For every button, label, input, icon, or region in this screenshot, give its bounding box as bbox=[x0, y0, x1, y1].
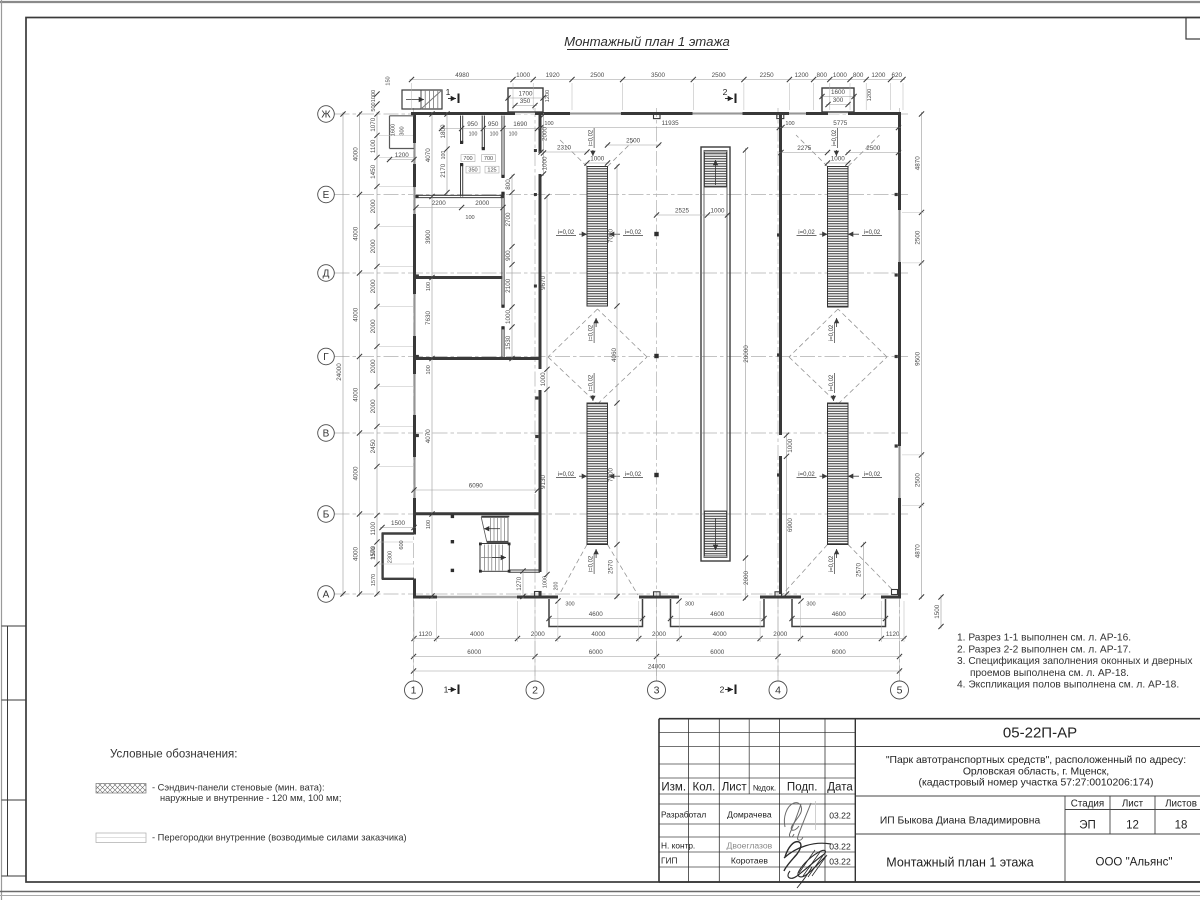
svg-text:6000: 6000 bbox=[832, 649, 847, 656]
svg-text:4070: 4070 bbox=[425, 148, 432, 163]
svg-text:12: 12 bbox=[1126, 820, 1139, 832]
svg-text:4600: 4600 bbox=[832, 611, 847, 618]
svg-text:i=0,02: i=0,02 bbox=[829, 374, 835, 391]
svg-text:2: 2 bbox=[532, 685, 538, 697]
svg-text:2000: 2000 bbox=[475, 200, 490, 207]
svg-text:1. Разрез 1-1 выполнен см. л.: 1. Разрез 1-1 выполнен см. л. АР-16. bbox=[957, 633, 1131, 644]
svg-text:1120: 1120 bbox=[419, 631, 433, 638]
svg-text:4980: 4980 bbox=[455, 72, 470, 79]
svg-text:ИП Быкова Диана Владимировна: ИП Быкова Диана Владимировна bbox=[880, 816, 1041, 827]
svg-text:4000: 4000 bbox=[353, 387, 360, 402]
svg-text:4060: 4060 bbox=[611, 348, 618, 363]
svg-text:7630: 7630 bbox=[425, 311, 432, 326]
svg-text:2310: 2310 bbox=[557, 145, 572, 152]
svg-text:ЭП: ЭП bbox=[1079, 820, 1096, 832]
svg-text:1270: 1270 bbox=[516, 576, 523, 591]
svg-text:4000: 4000 bbox=[353, 466, 360, 481]
svg-text:2450: 2450 bbox=[370, 439, 377, 454]
svg-text:100: 100 bbox=[426, 282, 432, 291]
svg-text:ГИП: ГИП bbox=[661, 856, 677, 866]
svg-text:300: 300 bbox=[400, 126, 406, 135]
svg-text:2500: 2500 bbox=[712, 72, 727, 79]
svg-text:1: 1 bbox=[444, 685, 449, 695]
svg-text:2000: 2000 bbox=[370, 319, 377, 334]
svg-text:i=0,02: i=0,02 bbox=[589, 374, 595, 391]
svg-text:300: 300 bbox=[833, 97, 844, 104]
svg-text:600: 600 bbox=[399, 540, 405, 549]
svg-text:100: 100 bbox=[509, 132, 518, 138]
svg-text:1100: 1100 bbox=[371, 547, 377, 559]
svg-text:4000: 4000 bbox=[834, 631, 849, 638]
svg-text:1800: 1800 bbox=[440, 124, 447, 139]
svg-text:1: 1 bbox=[446, 87, 451, 97]
svg-text:1200: 1200 bbox=[794, 72, 809, 79]
svg-text:i=0,02: i=0,02 bbox=[625, 230, 642, 236]
svg-text:100: 100 bbox=[426, 365, 432, 374]
svg-text:2300: 2300 bbox=[388, 551, 394, 563]
svg-text:1000: 1000 bbox=[590, 156, 605, 163]
svg-text:4870: 4870 bbox=[915, 156, 922, 171]
svg-text:3. Спецификация заполнения око: 3. Спецификация заполнения оконных и две… bbox=[957, 655, 1192, 667]
svg-text:Двоеглазов: Двоеглазов bbox=[727, 841, 773, 851]
svg-text:100: 100 bbox=[785, 121, 794, 127]
svg-text:300: 300 bbox=[685, 602, 694, 608]
svg-text:800: 800 bbox=[816, 72, 827, 79]
svg-text:2000: 2000 bbox=[652, 631, 667, 638]
svg-text:1000: 1000 bbox=[787, 438, 794, 453]
svg-text:1200: 1200 bbox=[395, 152, 410, 159]
svg-text:Монтажный план 1 этажа: Монтажный план 1 этажа bbox=[886, 856, 1033, 870]
svg-text:Лист: Лист bbox=[1122, 799, 1144, 810]
svg-text:2100: 2100 bbox=[505, 278, 512, 293]
svg-text:- Перегородки внутренние (возв: - Перегородки внутренние (возводимые сил… bbox=[152, 833, 407, 843]
svg-text:1000: 1000 bbox=[833, 72, 848, 79]
svg-text:2000: 2000 bbox=[531, 631, 546, 638]
svg-text:18: 18 bbox=[1175, 820, 1188, 832]
svg-text:800: 800 bbox=[853, 72, 864, 79]
svg-text:2200: 2200 bbox=[432, 200, 447, 207]
svg-text:1690: 1690 bbox=[513, 121, 528, 128]
svg-text:4600: 4600 bbox=[589, 611, 604, 618]
svg-text:1000: 1000 bbox=[710, 208, 725, 215]
svg-text:1600: 1600 bbox=[831, 89, 846, 96]
svg-text:2000: 2000 bbox=[773, 631, 788, 638]
svg-text:2500: 2500 bbox=[626, 138, 641, 145]
svg-text:4000: 4000 bbox=[470, 631, 485, 638]
svg-text:1000: 1000 bbox=[371, 90, 377, 102]
svg-text:2250: 2250 bbox=[760, 72, 775, 79]
svg-text:i=0,02: i=0,02 bbox=[829, 324, 835, 341]
svg-text:1500: 1500 bbox=[391, 520, 406, 527]
svg-text:4000: 4000 bbox=[353, 226, 360, 241]
svg-text:4600: 4600 bbox=[710, 611, 725, 618]
svg-text:350: 350 bbox=[520, 98, 531, 105]
svg-text:1000: 1000 bbox=[542, 156, 549, 171]
svg-text:950: 950 bbox=[488, 121, 499, 128]
svg-text:100: 100 bbox=[544, 121, 553, 127]
svg-text:1000: 1000 bbox=[505, 310, 512, 325]
svg-text:1600: 1600 bbox=[391, 124, 397, 136]
svg-text:11935: 11935 bbox=[662, 120, 680, 127]
svg-text:проемов выполнена см. л. АР-18: проемов выполнена см. л. АР-18. bbox=[970, 668, 1129, 679]
svg-text:i=0,02: i=0,02 bbox=[832, 129, 838, 146]
svg-text:100: 100 bbox=[469, 132, 478, 138]
svg-text:1500: 1500 bbox=[934, 604, 941, 619]
svg-text:2170: 2170 bbox=[440, 163, 447, 178]
svg-text:Изм.: Изм. bbox=[661, 782, 686, 794]
svg-text:150: 150 bbox=[386, 76, 392, 85]
svg-text:i=0,02: i=0,02 bbox=[558, 230, 575, 236]
svg-text:Кол.: Кол. bbox=[693, 782, 716, 794]
svg-text:05-22П-АР: 05-22П-АР bbox=[1003, 725, 1077, 742]
svg-text:Подп.: Подп. bbox=[787, 782, 818, 794]
svg-text:i=0,02: i=0,02 bbox=[558, 472, 575, 478]
svg-text:6090: 6090 bbox=[469, 483, 484, 490]
svg-text:7000: 7000 bbox=[608, 229, 615, 244]
svg-text:Монтажный план 1 этажа: Монтажный план 1 этажа bbox=[564, 34, 730, 49]
svg-text:Лист: Лист bbox=[722, 782, 748, 794]
svg-text:03.22: 03.22 bbox=[829, 842, 851, 852]
svg-text:Стадия: Стадия bbox=[1071, 799, 1104, 810]
svg-text:2570: 2570 bbox=[608, 560, 615, 575]
svg-text:Домрачева: Домрачева bbox=[727, 810, 772, 820]
svg-text:ООО "Альянс": ООО "Альянс" bbox=[1096, 857, 1173, 869]
svg-text:1450: 1450 bbox=[370, 164, 377, 179]
svg-text:24000: 24000 bbox=[648, 664, 666, 671]
svg-text:350: 350 bbox=[468, 168, 477, 174]
svg-text:03.22: 03.22 bbox=[829, 811, 851, 821]
svg-text:3: 3 bbox=[654, 685, 660, 697]
svg-text:3900: 3900 bbox=[425, 230, 432, 245]
svg-text:2275: 2275 bbox=[797, 145, 812, 152]
svg-text:Дата: Дата bbox=[827, 782, 853, 794]
svg-text:4: 4 bbox=[775, 685, 781, 697]
svg-text:4000: 4000 bbox=[353, 547, 360, 562]
svg-text:1700: 1700 bbox=[518, 91, 533, 98]
svg-text:(кадастровый номер участка 57:: (кадастровый номер участка 57:27:0010206… bbox=[919, 777, 1154, 788]
svg-text:9130: 9130 bbox=[540, 474, 547, 489]
svg-text:500: 500 bbox=[371, 102, 377, 111]
svg-text:3500: 3500 bbox=[651, 72, 666, 79]
svg-text:1920: 1920 bbox=[546, 72, 561, 79]
svg-text:Разработал: Разработал bbox=[661, 810, 706, 820]
svg-text:800: 800 bbox=[505, 179, 512, 190]
svg-text:i=0,02: i=0,02 bbox=[589, 555, 595, 572]
svg-text:Ж: Ж bbox=[321, 110, 331, 121]
svg-text:1200: 1200 bbox=[871, 72, 886, 79]
svg-text:- Сэндвич-панели стеновые (мин: - Сэндвич-панели стеновые (мин. вата): bbox=[152, 783, 325, 793]
svg-text:i=0,02: i=0,02 bbox=[864, 472, 881, 478]
svg-text:2. Разрез 2-2 выполнен см. л.: 2. Разрез 2-2 выполнен см. л. АР-17. bbox=[957, 644, 1131, 655]
svg-text:2: 2 bbox=[720, 685, 725, 695]
svg-text:4000: 4000 bbox=[353, 147, 360, 162]
svg-text:4070: 4070 bbox=[425, 429, 432, 444]
svg-text:Д: Д bbox=[323, 269, 330, 280]
svg-text:700: 700 bbox=[484, 156, 493, 162]
svg-text:9670: 9670 bbox=[540, 275, 547, 290]
svg-text:Условные обозначения:: Условные обозначения: bbox=[110, 749, 237, 761]
svg-text:2000: 2000 bbox=[542, 127, 549, 142]
svg-text:В: В bbox=[323, 429, 330, 440]
svg-text:100: 100 bbox=[441, 151, 447, 160]
svg-text:наружные и внутренние - 120 мм: наружные и внутренние - 120 мм, 100 мм; bbox=[160, 793, 341, 803]
svg-text:4000: 4000 bbox=[353, 307, 360, 322]
svg-text:900: 900 bbox=[505, 250, 512, 261]
svg-text:6000: 6000 bbox=[710, 649, 725, 656]
svg-text:Н. контр.: Н. контр. bbox=[661, 841, 695, 851]
svg-text:2000: 2000 bbox=[743, 571, 750, 586]
svg-text:i=0,02: i=0,02 bbox=[798, 472, 815, 478]
svg-text:950: 950 bbox=[467, 121, 478, 128]
svg-text:4. Экспликация полов выполнена: 4. Экспликация полов выполнена см. л. АР… bbox=[957, 680, 1179, 691]
svg-text:700: 700 bbox=[463, 156, 472, 162]
svg-text:1: 1 bbox=[411, 685, 417, 697]
svg-text:03.22: 03.22 bbox=[829, 857, 851, 867]
svg-text:2500: 2500 bbox=[915, 230, 922, 245]
svg-text:2000: 2000 bbox=[370, 399, 377, 414]
svg-text:1570: 1570 bbox=[371, 574, 377, 586]
svg-text:Е: Е bbox=[323, 190, 330, 201]
svg-text:6000: 6000 bbox=[589, 649, 604, 656]
svg-text:2500: 2500 bbox=[915, 473, 922, 488]
svg-text:2000: 2000 bbox=[370, 239, 377, 254]
svg-text:2700: 2700 bbox=[505, 212, 512, 227]
svg-text:2570: 2570 bbox=[856, 563, 863, 578]
svg-text:Орловская область, г. Мценск,: Орловская область, г. Мценск, bbox=[963, 765, 1109, 777]
svg-text:300: 300 bbox=[565, 602, 574, 608]
svg-text:i=0,02: i=0,02 bbox=[589, 324, 595, 341]
svg-text:i=0,02: i=0,02 bbox=[864, 230, 881, 236]
svg-text:200: 200 bbox=[554, 582, 560, 591]
svg-text:1000: 1000 bbox=[516, 72, 531, 79]
svg-text:i=0,02: i=0,02 bbox=[625, 472, 642, 478]
svg-text:2500: 2500 bbox=[590, 72, 605, 79]
svg-text:Коротаев: Коротаев bbox=[731, 856, 769, 866]
svg-text:1200: 1200 bbox=[867, 89, 873, 101]
svg-text:1000: 1000 bbox=[540, 372, 547, 387]
svg-text:100: 100 bbox=[490, 132, 499, 138]
svg-text:4000: 4000 bbox=[713, 631, 728, 638]
svg-text:24000: 24000 bbox=[336, 363, 343, 381]
svg-text:2000: 2000 bbox=[370, 359, 377, 374]
svg-text:1100: 1100 bbox=[370, 521, 377, 535]
svg-text:125: 125 bbox=[487, 168, 496, 174]
svg-text:6000: 6000 bbox=[467, 649, 482, 656]
svg-text:2000: 2000 bbox=[370, 199, 377, 214]
svg-text:1000: 1000 bbox=[543, 576, 549, 588]
svg-text:7000: 7000 bbox=[608, 468, 615, 483]
svg-text:6900: 6900 bbox=[787, 518, 794, 533]
svg-text:i=0,02: i=0,02 bbox=[829, 555, 835, 572]
svg-text:1200: 1200 bbox=[545, 90, 551, 102]
svg-text:4870: 4870 bbox=[915, 544, 922, 559]
svg-text:1530: 1530 bbox=[505, 335, 512, 350]
svg-text:1100: 1100 bbox=[370, 139, 377, 153]
svg-text:"Парк автотранспортных средств: "Парк автотранспортных средств", располо… bbox=[886, 755, 1186, 766]
svg-text:9500: 9500 bbox=[915, 351, 922, 366]
svg-text:Б: Б bbox=[323, 510, 330, 521]
svg-text:1120: 1120 bbox=[886, 631, 900, 638]
svg-text:4000: 4000 bbox=[591, 631, 606, 638]
svg-text:i=0,02: i=0,02 bbox=[589, 129, 595, 146]
svg-text:2500: 2500 bbox=[866, 145, 881, 152]
svg-text:2525: 2525 bbox=[675, 208, 690, 215]
svg-text:300: 300 bbox=[806, 602, 815, 608]
svg-text:№док.: №док. bbox=[753, 784, 776, 793]
svg-text:100: 100 bbox=[426, 520, 432, 529]
svg-text:620: 620 bbox=[891, 72, 902, 79]
svg-text:i=0,02: i=0,02 bbox=[798, 230, 815, 236]
svg-text:1070: 1070 bbox=[370, 117, 377, 132]
svg-text:А: А bbox=[323, 590, 330, 601]
svg-text:5775: 5775 bbox=[833, 120, 848, 127]
svg-text:5: 5 bbox=[897, 685, 903, 697]
svg-text:Листов: Листов bbox=[1165, 799, 1197, 810]
svg-text:2: 2 bbox=[723, 87, 728, 97]
svg-text:Г: Г bbox=[323, 352, 329, 363]
svg-text:20000: 20000 bbox=[743, 345, 750, 363]
svg-text:1000: 1000 bbox=[831, 156, 846, 163]
svg-text:100: 100 bbox=[465, 215, 474, 221]
svg-text:2000: 2000 bbox=[370, 279, 377, 294]
